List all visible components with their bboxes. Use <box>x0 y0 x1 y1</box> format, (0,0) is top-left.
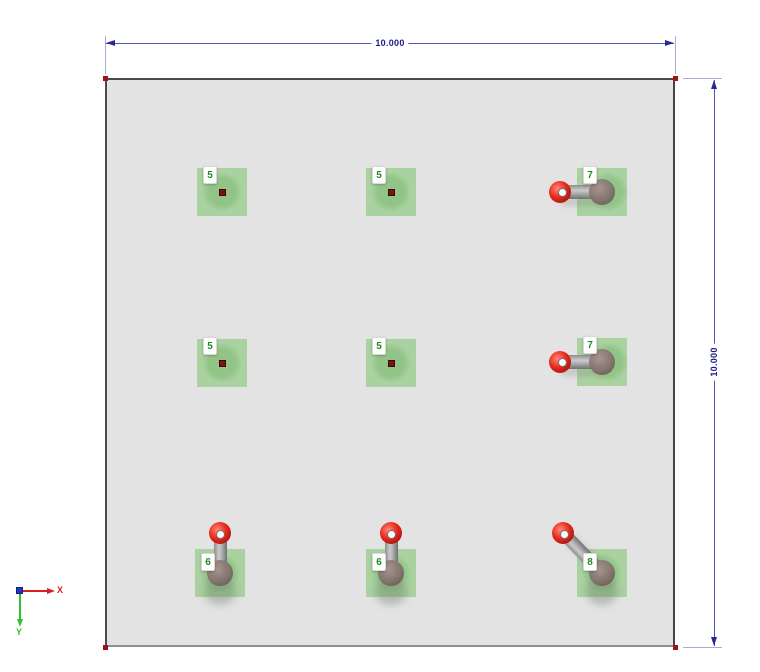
node-label[interactable]: 5 <box>203 337 217 355</box>
ball-pivot-dot <box>387 530 396 539</box>
arrowhead-icon <box>711 637 717 646</box>
ball-pivot-dot <box>558 188 567 197</box>
node-point <box>388 360 395 367</box>
extension-line <box>683 647 722 648</box>
axis-y-label: Y <box>16 627 22 637</box>
ball-pivot-dot <box>558 358 567 367</box>
node-point <box>219 189 226 196</box>
arrowhead-icon <box>711 80 717 89</box>
corner-node[interactable] <box>103 645 108 650</box>
arrowhead-icon <box>106 40 115 46</box>
axis-x-label: X <box>57 585 63 595</box>
extension-line <box>683 78 722 79</box>
node-label[interactable]: 7 <box>583 166 597 184</box>
axis-x-line <box>20 590 47 592</box>
node-label[interactable]: 6 <box>372 553 386 571</box>
node-point <box>219 360 226 367</box>
ball-pivot-dot <box>560 530 569 539</box>
extension-line <box>675 36 676 74</box>
node-label[interactable]: 5 <box>372 337 386 355</box>
corner-node[interactable] <box>103 76 108 81</box>
viewport[interactable]: 10.000 10.000 557557668 X Y <box>0 0 760 672</box>
node-label[interactable]: 5 <box>372 166 386 184</box>
axis-z-origin-icon <box>16 587 23 594</box>
dimension-right-label: 10.000 <box>709 343 719 380</box>
axis-y-arrow-icon <box>17 619 23 627</box>
arrowhead-icon <box>665 40 674 46</box>
ball-pivot-dot <box>216 530 225 539</box>
node-label[interactable]: 5 <box>203 166 217 184</box>
node-label[interactable]: 6 <box>201 553 215 571</box>
dimension-top-label: 10.000 <box>371 38 408 48</box>
corner-node[interactable] <box>673 645 678 650</box>
node-point <box>388 189 395 196</box>
axis-x-arrow-icon <box>47 588 55 594</box>
axis-y-line <box>19 592 21 619</box>
corner-node[interactable] <box>673 76 678 81</box>
node-label[interactable]: 7 <box>583 336 597 354</box>
node-label[interactable]: 8 <box>583 553 597 571</box>
